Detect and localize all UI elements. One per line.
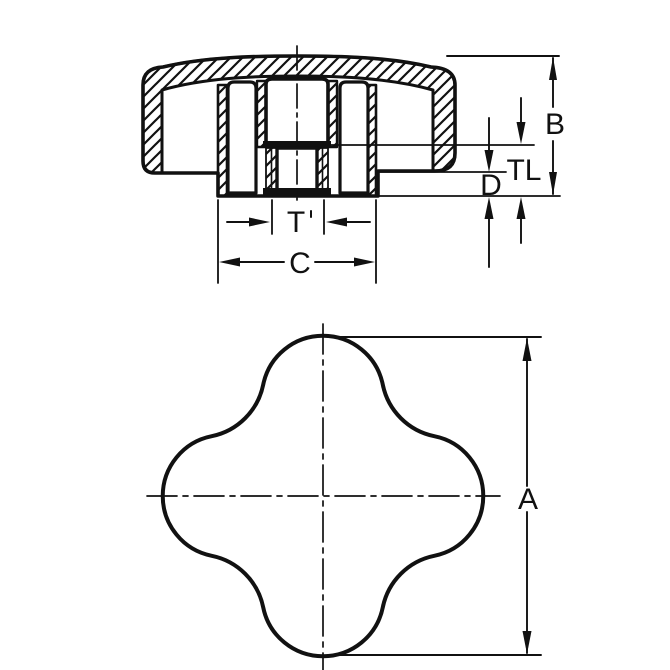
arrowhead-down [517, 122, 526, 144]
slot-right [340, 82, 368, 193]
hub-left-wall [218, 85, 227, 196]
arrowhead-left [326, 218, 347, 227]
dim-label-D: D [480, 169, 502, 202]
technical-drawing-canvas: B TL D T [0, 0, 670, 670]
dim-label-C: C [289, 247, 311, 280]
arrowhead-up [549, 57, 557, 80]
arrowhead-right [354, 258, 375, 267]
slot-left [228, 82, 256, 193]
arrowhead-up [523, 338, 532, 361]
dim-T: T [227, 200, 370, 239]
dim-label-A: A [518, 483, 538, 516]
plan-view: A [147, 324, 541, 670]
arrowhead-up [517, 197, 526, 219]
section-view: B TL D T [143, 46, 565, 283]
dim-label-T: T [287, 206, 305, 239]
arrowhead-down [523, 631, 532, 654]
dim-label-B: B [545, 108, 565, 141]
drawing-svg: B TL D T [0, 0, 670, 670]
arrowhead-down [549, 172, 557, 195]
arrowhead-left [219, 258, 240, 267]
dim-label-TL: TL [506, 154, 541, 187]
arrowhead-right [249, 218, 270, 227]
